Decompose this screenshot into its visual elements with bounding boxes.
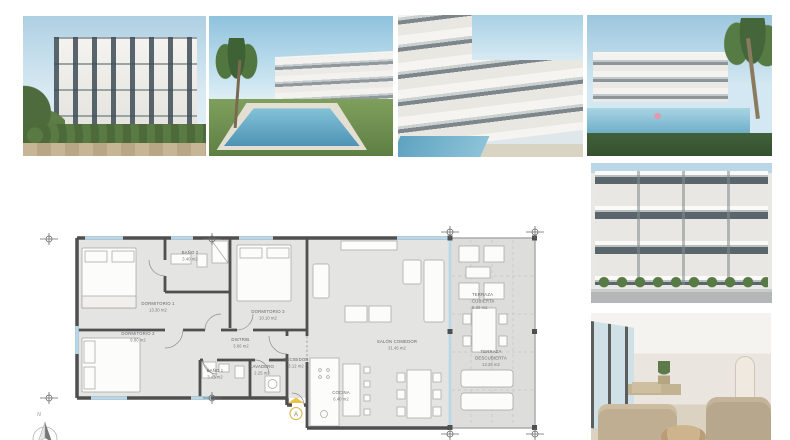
photo-building-pool-palm[interactable] [587, 15, 772, 156]
room-label-banio-1: BAÑO 1 3.45 m2 [207, 368, 224, 380]
svg-text:TERRAZA: TERRAZA [472, 292, 493, 297]
street [591, 289, 772, 303]
photo-building-pool[interactable] [209, 16, 393, 156]
svg-text:RECIBIDOR: RECIBIDOR [283, 357, 308, 362]
potted-plant [658, 361, 671, 384]
room-label-distrib: DISTRIB. 3.66 m2 [231, 337, 250, 349]
svg-text:2.25 m2: 2.25 m2 [254, 371, 270, 376]
lawn [587, 133, 772, 156]
planting-row [595, 275, 769, 288]
swimming-pool [398, 136, 489, 157]
svg-text:DORMITORIO 1: DORMITORIO 1 [141, 301, 175, 306]
svg-text:6.40 m2: 6.40 m2 [333, 397, 349, 402]
photo-building-angled[interactable] [23, 16, 206, 156]
round-coffee-table [661, 425, 706, 440]
sky [472, 15, 583, 60]
svg-text:13.28 m2: 13.28 m2 [482, 362, 500, 367]
svg-text:TERRAZA: TERRAZA [480, 349, 501, 354]
svg-text:13.30 m2: 13.30 m2 [149, 308, 167, 313]
entrance-marker: A [288, 398, 304, 420]
svg-text:SALÓN COMEDOR: SALÓN COMEDOR [377, 339, 417, 344]
svg-text:3.12 m2: 3.12 m2 [288, 364, 304, 369]
listing-collage: DORMITORIO 1 13.30 m2 BAÑO 2 3.40 m2 DOR… [0, 0, 790, 440]
building-facade [275, 51, 393, 106]
building-floors [595, 171, 769, 284]
svg-text:9.80 m2: 9.80 m2 [130, 338, 146, 343]
svg-text:31.45 m2: 31.45 m2 [388, 346, 406, 351]
photo-interior-livingroom[interactable] [591, 313, 771, 440]
photo-facade-closeup[interactable] [398, 15, 583, 157]
room-label-banio-2: BAÑO 2 3.40 m2 [182, 250, 199, 262]
building-facade [593, 52, 728, 102]
svg-text:BAÑO 1: BAÑO 1 [207, 368, 224, 373]
room-label-cocina: COCINA 6.40 m2 [332, 390, 350, 402]
compass-north-icon: N [33, 412, 57, 440]
svg-text:COCINA: COCINA [332, 390, 350, 395]
svg-text:DESCUBIERTA: DESCUBIERTA [475, 356, 507, 361]
floor-plan[interactable]: DORMITORIO 1 13.30 m2 BAÑO 2 3.40 m2 DOR… [25, 210, 573, 440]
palm-tree [211, 38, 263, 128]
svg-text:DORMITORIO 2: DORMITORIO 2 [121, 331, 155, 336]
stone-wall [23, 143, 206, 156]
svg-text:3.66 m2: 3.66 m2 [233, 344, 249, 349]
sofa-right [706, 397, 771, 440]
svg-text:CUBIERTA: CUBIERTA [472, 299, 495, 304]
entrance-letter: A [294, 412, 298, 418]
pool-float [654, 113, 661, 119]
svg-text:10.10 m2: 10.10 m2 [259, 316, 277, 321]
svg-text:BAÑO 2: BAÑO 2 [182, 250, 199, 255]
svg-text:3.40 m2: 3.40 m2 [182, 257, 198, 262]
palm-tree [718, 18, 772, 117]
arched-door [735, 356, 755, 403]
building-facade [54, 37, 197, 129]
svg-text:LAVADERO: LAVADERO [250, 364, 274, 369]
hedge [23, 124, 206, 144]
photo-facade-front[interactable] [591, 163, 772, 303]
svg-text:DORMITORIO 3: DORMITORIO 3 [251, 309, 285, 314]
svg-text:3.45 m2: 3.45 m2 [207, 375, 223, 380]
svg-text:9.30 m2: 9.30 m2 [472, 305, 488, 310]
svg-text:DISTRIB.: DISTRIB. [231, 337, 250, 342]
svg-text:N: N [37, 412, 41, 418]
